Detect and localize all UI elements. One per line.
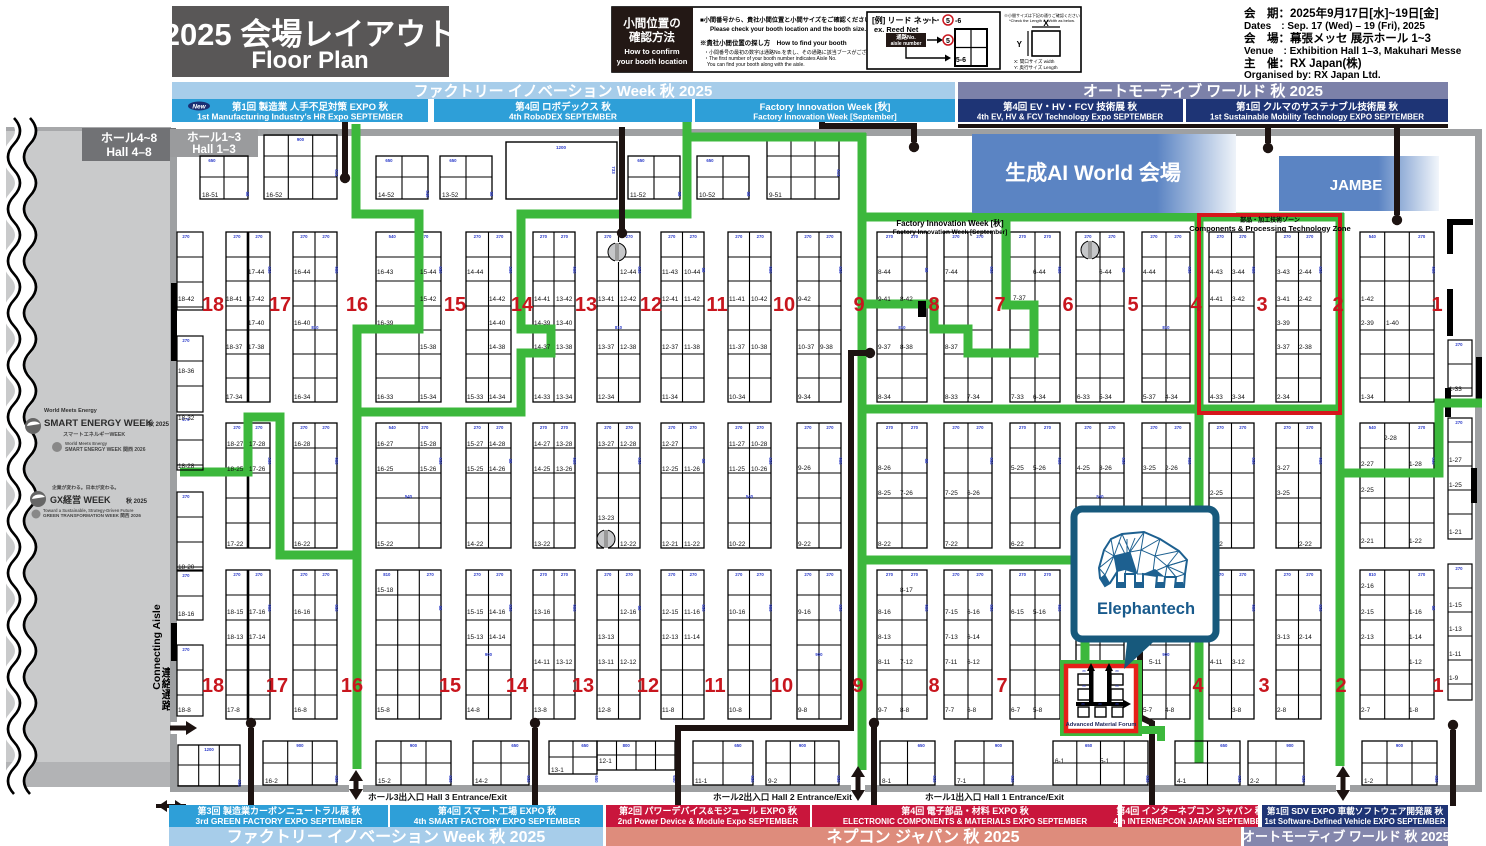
svg-text:8-13: 8-13 [878, 634, 891, 641]
svg-text:2-7: 2-7 [1361, 707, 1371, 714]
svg-text:900: 900 [1318, 457, 1323, 465]
svg-text:3: 3 [1258, 675, 1269, 697]
svg-text:7-7: 7-7 [945, 707, 955, 714]
svg-text:900: 900 [572, 266, 577, 274]
svg-text:1-21: 1-21 [1449, 529, 1462, 536]
svg-text:3-8: 3-8 [1232, 707, 1242, 714]
svg-text:900: 900 [485, 652, 493, 657]
svg-text:810: 810 [1162, 325, 1170, 330]
svg-text:14-52: 14-52 [378, 192, 395, 199]
svg-text:270: 270 [757, 234, 765, 239]
svg-text:10-34: 10-34 [729, 394, 746, 401]
svg-text:小間位置の: 小間位置の [622, 16, 681, 30]
svg-text:11-14: 11-14 [684, 634, 700, 641]
svg-text:your booth location: your booth location [617, 57, 688, 66]
svg-text:900: 900 [1162, 652, 1170, 657]
svg-text:Please check your booth locati: Please check your booth location and the… [710, 26, 866, 33]
svg-text:5: 5 [1127, 294, 1138, 316]
svg-text:スマートエネルギーWEEK: スマートエネルギーWEEK [63, 430, 125, 438]
svg-text:14-22: 14-22 [467, 541, 484, 548]
svg-text:733: 733 [611, 166, 616, 174]
svg-text:270: 270 [1306, 572, 1314, 577]
svg-text:5-16: 5-16 [1033, 609, 1046, 616]
svg-text:13-11: 13-11 [598, 659, 614, 666]
svg-text:How to confirm: How to confirm [624, 47, 680, 56]
svg-text:7-1: 7-1 [957, 778, 967, 785]
svg-text:270: 270 [1108, 234, 1116, 239]
svg-text:270: 270 [1084, 234, 1092, 239]
svg-text:主 催：RX Japan(株): 主 催：RX Japan(株) [1244, 56, 1362, 70]
svg-text:2-28: 2-28 [1384, 435, 1397, 442]
svg-text:14-11: 14-11 [534, 659, 550, 666]
svg-text:5-8: 5-8 [1033, 707, 1043, 714]
svg-text:810: 810 [311, 325, 319, 330]
svg-text:13-26: 13-26 [556, 466, 573, 473]
svg-text:ホール1出入口 Hall 1 Entrance/Exit: ホール1出入口 Hall 1 Entrance/Exit [925, 791, 1064, 802]
svg-text:900: 900 [296, 743, 304, 748]
svg-text:Dates : Sep. 17 (Wed) – 19 (: Dates : Sep. 17 (Wed) – 19 (Fri), 2025 [1244, 21, 1425, 32]
svg-text:8-22: 8-22 [878, 541, 891, 548]
svg-text:88: 88 [677, 192, 682, 197]
svg-text:2-13: 2-13 [1361, 634, 1374, 641]
svg-text:270: 270 [886, 572, 894, 577]
svg-text:14-41: 14-41 [534, 296, 551, 303]
svg-text:17-16: 17-16 [249, 609, 266, 616]
svg-text:900: 900 [1396, 743, 1404, 748]
svg-text:ホール4~8: ホール4~8 [101, 131, 158, 145]
svg-text:7-22: 7-22 [945, 541, 958, 548]
svg-text:14-39: 14-39 [534, 320, 551, 327]
svg-text:Components & Processing Techno: Components & Processing Technology Zone [1189, 224, 1350, 233]
svg-text:16-2: 16-2 [265, 778, 278, 785]
svg-text:18-32: 18-32 [178, 415, 195, 422]
svg-text:3-37: 3-37 [1277, 344, 1290, 351]
svg-text:15-34: 15-34 [420, 394, 437, 401]
svg-text:7: 7 [996, 675, 1007, 697]
svg-text:650: 650 [526, 775, 531, 783]
svg-text:88: 88 [1115, 702, 1119, 706]
svg-text:ELECTRONIC COMPONENTS & MATERI: ELECTRONIC COMPONENTS & MATERIALS EXPO S… [843, 817, 1088, 826]
svg-text:16: 16 [346, 294, 368, 316]
svg-text:270: 270 [1217, 425, 1225, 430]
svg-text:540: 540 [389, 234, 397, 239]
svg-text:8-1: 8-1 [882, 778, 892, 785]
svg-text:2-34: 2-34 [1277, 394, 1290, 401]
svg-text:ネプコン ジャパン 秋 2025: ネプコン ジャパン 秋 2025 [827, 827, 1020, 846]
svg-text:18-27: 18-27 [227, 441, 244, 448]
svg-text:650: 650 [1318, 266, 1323, 274]
svg-text:650: 650 [1010, 775, 1015, 783]
svg-text:8-34: 8-34 [878, 394, 891, 401]
svg-text:4-25: 4-25 [1077, 465, 1090, 472]
svg-text:9: 9 [853, 294, 864, 316]
svg-text:88: 88 [1082, 684, 1086, 688]
svg-text:11-41: 11-41 [729, 296, 745, 303]
svg-text:11: 11 [706, 294, 727, 316]
svg-text:650: 650 [267, 266, 272, 274]
svg-text:9-8: 9-8 [798, 707, 808, 714]
svg-text:270: 270 [1044, 234, 1052, 239]
svg-text:12-34: 12-34 [598, 394, 615, 401]
svg-text:8: 8 [928, 675, 939, 697]
svg-text:17-44: 17-44 [248, 269, 265, 276]
svg-text:10-44: 10-44 [684, 269, 701, 276]
svg-text:3-13: 3-13 [1277, 634, 1290, 641]
svg-text:1-2: 1-2 [1364, 778, 1374, 785]
svg-text:ファクトリー イノベーション Week 秋 2025: ファクトリー イノベーション Week 秋 2025 [414, 82, 713, 100]
svg-text:12-21: 12-21 [662, 541, 679, 548]
svg-text:10-26: 10-26 [751, 466, 768, 473]
svg-text:3-43: 3-43 [1277, 269, 1290, 276]
svg-text:Hall 4–8: Hall 4–8 [106, 145, 152, 159]
svg-text:1-16: 1-16 [1409, 609, 1422, 616]
svg-text:88: 88 [1121, 268, 1126, 273]
svg-text:1-27: 1-27 [1449, 457, 1462, 464]
svg-text:88: 88 [924, 268, 929, 273]
svg-text:13-28: 13-28 [556, 441, 573, 448]
svg-text:6-33: 6-33 [1077, 394, 1090, 401]
svg-text:650: 650 [334, 604, 339, 612]
svg-text:2-15: 2-15 [1361, 609, 1374, 616]
svg-text:270: 270 [886, 425, 894, 430]
svg-text:8-42: 8-42 [900, 296, 913, 303]
svg-text:12-12: 12-12 [620, 659, 637, 666]
svg-text:11-25: 11-25 [729, 466, 745, 473]
svg-text:18-37: 18-37 [226, 344, 243, 351]
svg-text:6-34: 6-34 [1033, 394, 1046, 401]
svg-text:15-8: 15-8 [377, 707, 390, 714]
svg-text:7-11: 7-11 [945, 659, 958, 666]
svg-text:650: 650 [208, 158, 216, 163]
svg-text:Venue : Exhibition Hall 1–3,: Venue : Exhibition Hall 1–3, Makuhari Me… [1244, 46, 1462, 57]
svg-text:9-34: 9-34 [798, 394, 811, 401]
svg-text:1st Sustainable Mobility Techn: 1st Sustainable Mobility Technology EXPO… [1210, 113, 1424, 122]
svg-text:Hall 1–3: Hall 1–3 [192, 144, 235, 156]
svg-text:14-34: 14-34 [489, 394, 506, 401]
svg-text:650: 650 [918, 743, 926, 748]
svg-text:ホール2出入口 Hall 2 Entrance/Exit: ホール2出入口 Hall 2 Entrance/Exit [713, 791, 852, 802]
svg-text:270: 270 [952, 572, 960, 577]
svg-text:270: 270 [1044, 572, 1052, 577]
svg-text:270: 270 [255, 234, 263, 239]
svg-text:9-51: 9-51 [769, 192, 782, 199]
svg-text:900: 900 [1286, 743, 1294, 748]
svg-text:X: 間口サイズ width: X: 間口サイズ width [1014, 58, 1055, 65]
svg-text:1-8: 1-8 [1409, 707, 1419, 714]
svg-text:部品・加工技術ゾーン: 部品・加工技術ゾーン [1240, 216, 1300, 224]
svg-text:8-16: 8-16 [878, 609, 891, 616]
svg-text:5-1: 5-1 [1100, 758, 1110, 765]
svg-text:4th INTERNEPCON JAPAN SEPTEMBE: 4th INTERNEPCON JAPAN SEPTEMBER [1113, 817, 1266, 826]
svg-text:5: 5 [946, 18, 950, 25]
svg-text:11-42: 11-42 [684, 296, 700, 303]
svg-text:1-25: 1-25 [1449, 482, 1462, 489]
svg-text:17-40: 17-40 [248, 320, 265, 327]
svg-text:6: 6 [1062, 294, 1073, 316]
svg-text:900: 900 [1251, 604, 1256, 612]
svg-text:270: 270 [1455, 566, 1463, 571]
svg-text:9-37: 9-37 [878, 344, 891, 351]
svg-text:900: 900 [768, 604, 773, 612]
svg-text:1-34: 1-34 [1361, 394, 1374, 401]
svg-text:17: 17 [269, 294, 291, 316]
svg-text:Floor Plan: Floor Plan [251, 47, 368, 74]
svg-text:270: 270 [1239, 425, 1247, 430]
svg-text:18-20: 18-20 [178, 564, 195, 571]
svg-text:13-42: 13-42 [556, 296, 573, 303]
svg-text:5-26: 5-26 [1033, 465, 1046, 472]
svg-text:16-8: 16-8 [294, 707, 307, 714]
svg-text:810: 810 [383, 572, 391, 577]
svg-text:13-12: 13-12 [556, 659, 573, 666]
svg-text:18: 18 [202, 294, 224, 316]
svg-text:10: 10 [771, 675, 793, 697]
svg-text:※貴社小間位置の探し方 How to find your b: ※貴社小間位置の探し方 How to find your booth [700, 38, 847, 47]
svg-text:12-27: 12-27 [662, 441, 679, 448]
svg-text:650: 650 [637, 158, 645, 163]
svg-text:15-15: 15-15 [467, 609, 484, 616]
svg-text:1-22: 1-22 [1409, 538, 1422, 545]
svg-text:17-26: 17-26 [249, 466, 266, 473]
svg-text:2-39: 2-39 [1361, 320, 1374, 327]
svg-text:New: New [192, 104, 206, 111]
svg-text:12: 12 [637, 675, 659, 697]
svg-text:650: 650 [1121, 457, 1126, 465]
svg-text:11-8: 11-8 [662, 707, 675, 714]
svg-text:17-28: 17-28 [249, 441, 266, 448]
svg-text:Advanced Material Forum: Advanced Material Forum [1066, 722, 1137, 728]
svg-text:会 期：2025年9月17日[水]~19日[金]: 会 期：2025年9月17日[水]~19日[金] [1243, 6, 1439, 20]
svg-text:270: 270 [826, 425, 834, 430]
svg-text:6-8: 6-8 [967, 707, 977, 714]
svg-text:1: 1 [1431, 294, 1442, 316]
svg-text:10-38: 10-38 [751, 344, 768, 351]
svg-text:15: 15 [439, 675, 461, 697]
svg-text:270: 270 [626, 425, 634, 430]
svg-text:・小間番号の最初の数字は通路No.を表し、その通路に該当ブー: ・小間番号の最初の数字は通路No.を表し、その通路に該当ブースがございます [704, 49, 882, 56]
svg-text:270: 270 [300, 572, 308, 577]
svg-text:540: 540 [1096, 494, 1104, 499]
svg-text:270: 270 [1239, 234, 1247, 239]
svg-text:810: 810 [898, 325, 906, 330]
svg-text:88: 88 [746, 192, 751, 197]
svg-text:13-22: 13-22 [534, 541, 551, 548]
svg-text:14-2: 14-2 [475, 778, 488, 785]
svg-text:15-22: 15-22 [377, 541, 394, 548]
svg-text:1-15: 1-15 [1449, 602, 1462, 609]
svg-text:650: 650 [594, 775, 599, 783]
svg-text:Factory Innovation Week [Septe: Factory Innovation Week [September] [893, 229, 1008, 236]
svg-text:270: 270 [255, 425, 263, 430]
svg-text:270: 270 [182, 338, 190, 343]
svg-text:900: 900 [1431, 266, 1436, 274]
svg-text:88: 88 [637, 606, 642, 611]
svg-text:270: 270 [668, 425, 676, 430]
svg-text:270: 270 [735, 425, 743, 430]
svg-text:2-44: 2-44 [1299, 269, 1312, 276]
svg-text:270: 270 [1239, 572, 1247, 577]
svg-text:540: 540 [746, 494, 754, 499]
svg-text:ファクトリー イノベーション Week 秋 2025: ファクトリー イノベーション Week 秋 2025 [227, 827, 546, 846]
svg-text:3-34: 3-34 [1232, 394, 1245, 401]
svg-text:Y: Y [1017, 40, 1023, 49]
svg-text:*Check the Length & Width as b: *Check the Length & Width as below. [1009, 18, 1075, 23]
svg-text:270: 270 [604, 234, 612, 239]
svg-text:900: 900 [1057, 457, 1062, 465]
svg-text:16-33: 16-33 [377, 394, 394, 401]
svg-text:270: 270 [1174, 425, 1182, 430]
svg-text:オートモーティブ ワールド 秋 2025: オートモーティブ ワールド 秋 2025 [1242, 829, 1450, 844]
svg-text:5-25: 5-25 [1011, 465, 1024, 472]
svg-text:270: 270 [826, 572, 834, 577]
svg-text:GX経営 WEEK: GX経営 WEEK [50, 494, 111, 505]
svg-text:13-16: 13-16 [534, 609, 551, 616]
svg-text:■小間番号から、貴社小間位置と小間サイズをご確認ください: ■小間番号から、貴社小間位置と小間サイズをご確認ください [700, 16, 871, 24]
svg-text:4-1: 4-1 [1177, 778, 1187, 785]
svg-text:900: 900 [572, 604, 577, 612]
svg-text:88: 88 [701, 459, 706, 464]
svg-text:650: 650 [438, 457, 443, 465]
svg-text:7-26: 7-26 [900, 490, 913, 497]
svg-text:10-8: 10-8 [729, 707, 742, 714]
svg-text:650: 650 [836, 775, 841, 783]
svg-text:15-2: 15-2 [378, 778, 391, 785]
svg-text:650: 650 [1187, 266, 1192, 274]
svg-text:16-43: 16-43 [377, 269, 394, 276]
svg-text:5-6: 5-6 [956, 57, 966, 64]
svg-text:13-23: 13-23 [598, 515, 615, 522]
svg-text:1: 1 [1432, 675, 1443, 697]
svg-text:5: 5 [946, 38, 950, 45]
svg-text:11-27: 11-27 [729, 441, 745, 448]
svg-text:270: 270 [1306, 234, 1314, 239]
svg-text:4-41: 4-41 [1210, 296, 1223, 303]
svg-text:270: 270 [300, 234, 308, 239]
svg-text:9-42: 9-42 [798, 296, 811, 303]
svg-text:4th RoboDEX SEPTEMBER: 4th RoboDEX SEPTEMBER [509, 112, 617, 122]
svg-text:4-33: 4-33 [1210, 394, 1223, 401]
svg-text:900: 900 [995, 743, 1003, 748]
svg-text:12-37: 12-37 [662, 344, 679, 351]
svg-text:270: 270 [1150, 234, 1158, 239]
svg-text:15-25: 15-25 [467, 466, 484, 473]
svg-text:X: X [1043, 19, 1049, 28]
svg-text:8-11: 8-11 [878, 659, 891, 666]
svg-text:270: 270 [561, 572, 569, 577]
svg-text:270: 270 [804, 572, 812, 577]
svg-text:12-16: 12-16 [620, 609, 637, 616]
svg-text:14-33: 14-33 [534, 394, 551, 401]
svg-text:650: 650 [448, 775, 453, 783]
svg-text:13: 13 [575, 294, 597, 316]
svg-text:第1回 SDV EXPO 車載ソフトウェア開発展 秋: 第1回 SDV EXPO 車載ソフトウェア開発展 秋 [1267, 805, 1444, 816]
svg-text:18-15: 18-15 [227, 609, 244, 616]
svg-text:通路No.: 通路No. [896, 33, 916, 41]
svg-text:6-14: 6-14 [967, 634, 980, 641]
svg-text:18-36: 18-36 [178, 368, 195, 375]
svg-text:3rd GREEN FACTORY EXPO SEPTEMB: 3rd GREEN FACTORY EXPO SEPTEMBER [196, 816, 363, 826]
svg-text:オートモーティブ ワールド 秋 2025: オートモーティブ ワールド 秋 2025 [1083, 82, 1323, 100]
svg-text:18-25: 18-25 [227, 466, 244, 473]
svg-text:270: 270 [322, 572, 330, 577]
svg-text:810: 810 [1369, 572, 1377, 577]
svg-text:14-28: 14-28 [489, 441, 506, 448]
svg-text:5-11: 5-11 [1149, 659, 1162, 666]
svg-text:270: 270 [976, 425, 984, 430]
svg-text:2-38: 2-38 [1299, 344, 1312, 351]
svg-text:3-41: 3-41 [1277, 296, 1290, 303]
svg-text:13-41: 13-41 [598, 296, 615, 303]
svg-text:270: 270 [1284, 425, 1292, 430]
svg-text:16-34: 16-34 [294, 394, 311, 401]
svg-text:900: 900 [815, 652, 823, 657]
svg-text:16: 16 [341, 675, 363, 697]
svg-text:270: 270 [952, 425, 960, 430]
svg-text:650: 650 [989, 457, 994, 465]
svg-text:12: 12 [640, 294, 662, 316]
svg-text:650: 650 [932, 775, 937, 783]
svg-text:650: 650 [449, 158, 457, 163]
svg-text:650: 650 [637, 457, 642, 465]
svg-text:17-8: 17-8 [227, 707, 240, 714]
svg-text:18-16: 18-16 [178, 611, 195, 618]
svg-text:360: 360 [267, 457, 272, 465]
svg-text:900: 900 [1251, 266, 1256, 274]
svg-text:1200: 1200 [556, 145, 567, 150]
svg-text:650: 650 [511, 743, 519, 748]
svg-text:Factory Innovation Week [秋]: Factory Innovation Week [秋] [896, 218, 1004, 228]
svg-text:12-1: 12-1 [599, 758, 612, 765]
svg-text:15-38: 15-38 [420, 344, 437, 351]
svg-text:1200: 1200 [204, 747, 214, 752]
svg-text:88: 88 [489, 192, 494, 197]
svg-text:8-38: 8-38 [900, 344, 913, 351]
svg-text:Organised by: RX Japan Ltd.: Organised by: RX Japan Ltd. [1244, 70, 1381, 81]
svg-text:270: 270 [496, 572, 504, 577]
svg-text:9-26: 9-26 [798, 465, 811, 472]
svg-text:14: 14 [511, 294, 534, 316]
svg-text:ホール1~3: ホール1~3 [187, 131, 241, 144]
svg-text:15-27: 15-27 [467, 441, 484, 448]
svg-text:88: 88 [1431, 606, 1436, 611]
svg-text:11-16: 11-16 [684, 609, 700, 616]
svg-text:270: 270 [233, 234, 241, 239]
svg-text:650: 650 [637, 266, 642, 274]
svg-text:270: 270 [182, 647, 190, 652]
svg-text:16-27: 16-27 [377, 441, 394, 448]
svg-text:4: 4 [1192, 675, 1204, 697]
svg-text:17-34: 17-34 [226, 394, 243, 401]
svg-text:14-8: 14-8 [467, 707, 480, 714]
svg-text:6-15: 6-15 [1011, 609, 1024, 616]
svg-text:10: 10 [773, 294, 795, 316]
svg-text:17-22: 17-22 [227, 541, 244, 548]
svg-text:7-33: 7-33 [1011, 394, 1024, 401]
svg-text:3-25: 3-25 [1277, 490, 1290, 497]
svg-text:88: 88 [1082, 669, 1086, 673]
svg-text:7-37: 7-37 [1013, 295, 1026, 302]
svg-text:ホール3出入口 Hall 3 Entrance/Exit: ホール3出入口 Hall 3 Entrance/Exit [368, 791, 507, 802]
svg-text:270: 270 [804, 234, 812, 239]
svg-text:270: 270 [496, 234, 504, 239]
svg-text:8: 8 [928, 294, 939, 316]
svg-text:540: 540 [1369, 234, 1377, 239]
svg-text:3-27: 3-27 [1277, 465, 1290, 472]
svg-text:10-37: 10-37 [798, 344, 815, 351]
svg-text:88: 88 [1115, 684, 1119, 688]
svg-text:18-8: 18-8 [178, 707, 191, 714]
svg-text:9-2: 9-2 [768, 778, 778, 785]
